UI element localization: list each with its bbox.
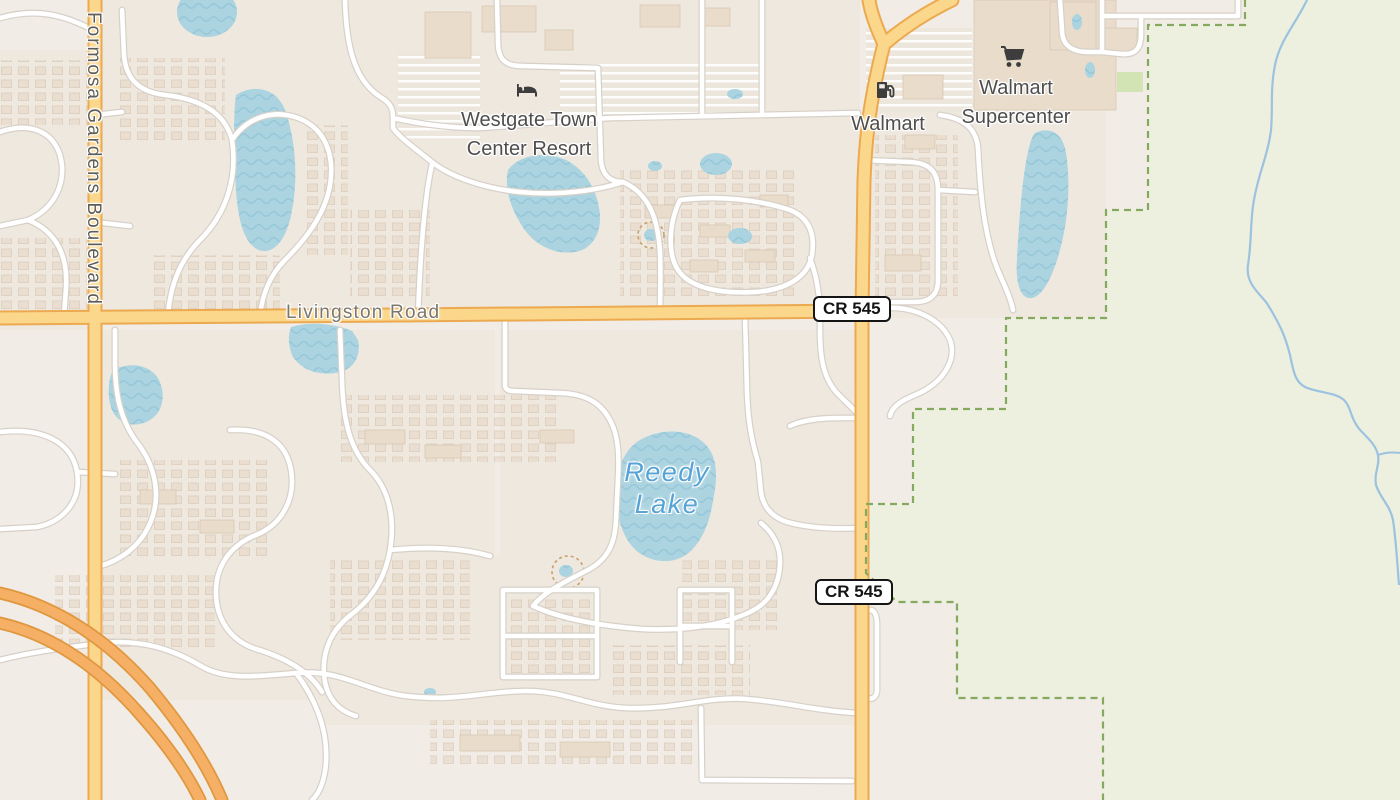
route-shield-cr545-south: CR 545 <box>815 579 893 605</box>
route-shield-cr545-north: CR 545 <box>813 296 891 322</box>
small-park <box>1117 72 1143 92</box>
map-canvas[interactable]: Formosa Gardens Boulevard Livingston Roa… <box>0 0 1400 800</box>
map-tile-layer <box>0 0 1400 800</box>
